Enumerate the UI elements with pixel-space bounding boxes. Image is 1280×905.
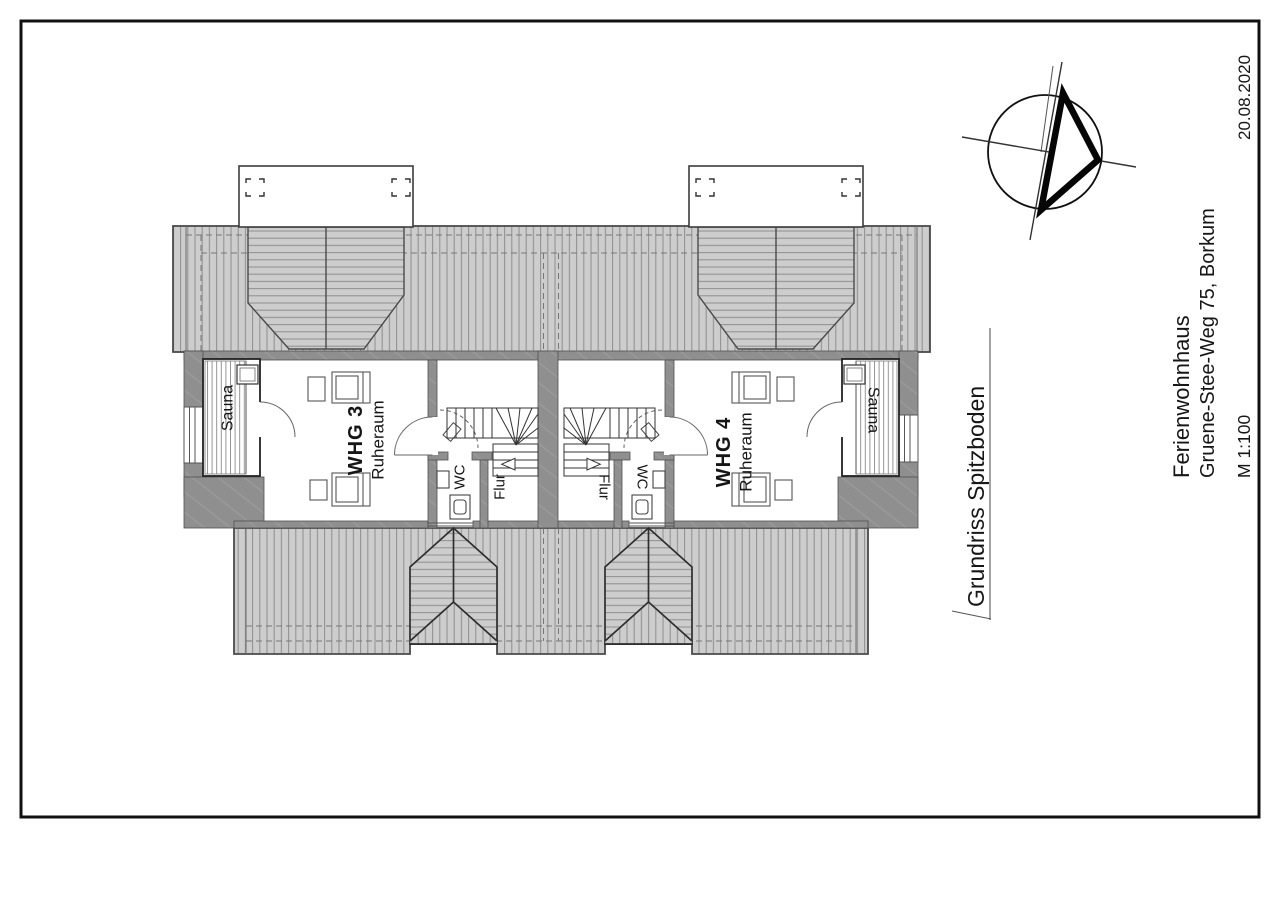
door-swing-dashed-right bbox=[624, 410, 662, 448]
label-whg4-room: Ruheraum bbox=[737, 412, 756, 491]
window-left bbox=[184, 407, 203, 463]
washbasin bbox=[437, 471, 449, 488]
sauna-right bbox=[807, 359, 899, 476]
door-swing-dashed-left bbox=[440, 410, 478, 448]
label-wc-left: WC bbox=[452, 464, 469, 489]
label-whg3-name: WHG 3 bbox=[345, 405, 367, 476]
drawing-page: WHG 3 Ruheraum WHG 4 Ruheraum Sauna Saun… bbox=[0, 0, 1280, 905]
washbasin bbox=[653, 471, 665, 488]
side-table bbox=[308, 377, 325, 401]
side-table bbox=[775, 480, 792, 500]
label-flur-left: Flur bbox=[492, 474, 509, 500]
handrail-post-left bbox=[443, 423, 461, 442]
drawing-title: Grundriss Spitzboden bbox=[963, 386, 989, 607]
label-whg3-room: Ruheraum bbox=[369, 400, 388, 479]
roof-bottom-band bbox=[234, 528, 868, 654]
project-name: Ferienwohnhaus bbox=[1169, 315, 1194, 478]
label-whg4-name: WHG 4 bbox=[713, 417, 735, 488]
label-sauna-left: Sauna bbox=[220, 385, 237, 431]
walls bbox=[184, 351, 918, 528]
label-sauna-right: Sauna bbox=[865, 387, 882, 433]
title-block: 20.08.2020 Ferienwohnhaus Gruene-Stee-We… bbox=[952, 55, 1254, 620]
floor-plan-svg: WHG 3 Ruheraum WHG 4 Ruheraum Sauna Saun… bbox=[0, 0, 1280, 905]
handrail-post-right bbox=[641, 423, 659, 442]
window-right bbox=[899, 415, 918, 462]
sauna-door-swing bbox=[260, 402, 295, 437]
north-arrow-icon bbox=[962, 62, 1136, 240]
sauna-door-swing bbox=[807, 402, 842, 437]
sauna-left bbox=[203, 359, 295, 476]
side-table bbox=[777, 377, 794, 401]
label-flur-right: Flur bbox=[596, 474, 613, 500]
project-address: Gruene-Stee-Weg 75, Borkum bbox=[1197, 208, 1219, 478]
drawing-scale: M 1:100 bbox=[1234, 415, 1254, 478]
label-wc-right: WC bbox=[634, 465, 651, 490]
title-tick bbox=[952, 611, 991, 619]
drawing-date: 20.08.2020 bbox=[1235, 55, 1254, 140]
door-whg4 bbox=[664, 417, 708, 455]
side-table bbox=[310, 480, 327, 500]
door-whg3 bbox=[395, 417, 439, 455]
